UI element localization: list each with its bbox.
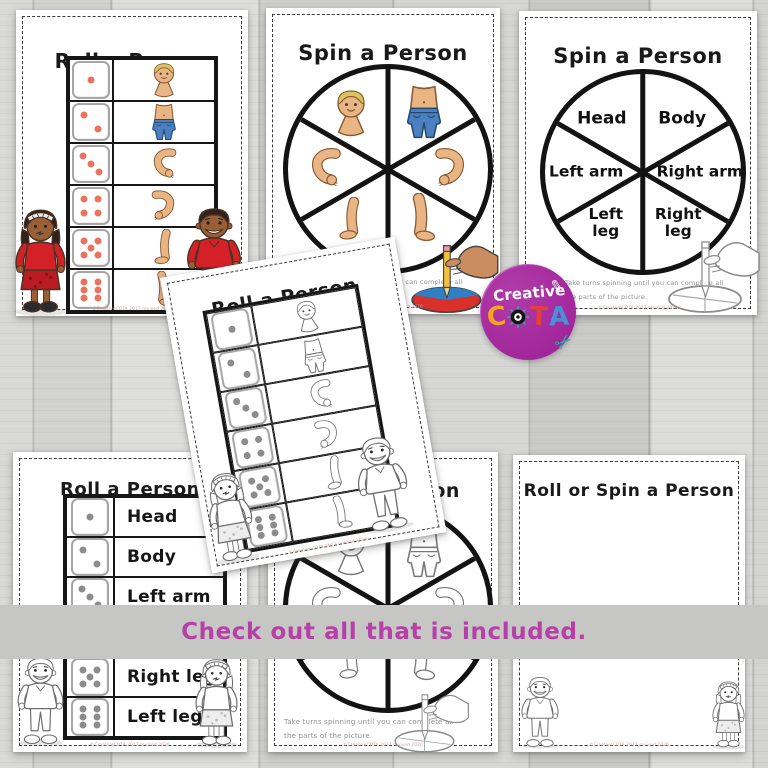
die-cell xyxy=(66,497,114,537)
hand-spinning-pencil-image xyxy=(665,236,761,316)
die-5 xyxy=(71,658,109,696)
instructions-line2: the parts of the picture. xyxy=(565,293,647,301)
copyright-text: ©CreativeCOTA 2017 revised 2020 xyxy=(13,742,247,747)
girl-character xyxy=(10,206,71,318)
left-leg-image xyxy=(328,197,374,243)
boy-character xyxy=(15,654,66,748)
die-1 xyxy=(71,498,109,536)
card-title: Roll or Spin a Person xyxy=(513,481,745,501)
die-cell xyxy=(69,185,113,227)
die-cell xyxy=(69,143,113,185)
logo-letter-c: C xyxy=(486,303,508,331)
copyright-text: ©CreativeCOTA 2017 revised 2020 xyxy=(268,742,498,747)
die-2 xyxy=(217,347,261,391)
logo-letter-a: A xyxy=(548,303,569,330)
head-image xyxy=(324,86,378,140)
card-title: Spin a Person xyxy=(266,41,500,65)
die-cell xyxy=(66,657,114,697)
instructions-line2: the parts of the picture. xyxy=(284,732,372,740)
card-spin-a-person-text: Spin a Person Head Body Left arm Right a… xyxy=(519,11,757,315)
die-1 xyxy=(72,61,110,99)
left-leg-image xyxy=(145,229,183,267)
product-preview-collage: Roll a Person ©CreativeCOTA 2017 revised… xyxy=(0,0,768,768)
eye-icon xyxy=(507,306,529,328)
wedge-label-left-leg: Left leg xyxy=(580,206,632,240)
girl-character xyxy=(191,656,242,750)
part-cell xyxy=(113,59,215,101)
girl-character xyxy=(709,679,748,751)
left-leg-image xyxy=(314,453,356,495)
right-leg-image xyxy=(321,492,363,534)
left-arm-image xyxy=(146,146,182,182)
right-leg-image xyxy=(396,193,448,245)
body-image xyxy=(144,102,184,142)
die-4 xyxy=(231,425,275,469)
wedge-label-body: Body xyxy=(658,110,706,129)
caption-banner: Check out all that is included. xyxy=(0,605,768,659)
die-cell xyxy=(69,59,113,101)
wedge-label-left-arm: Left arm xyxy=(549,163,623,180)
logo-word-cota: C T A xyxy=(486,304,570,330)
caption-text: Check out all that is included. xyxy=(181,619,587,645)
die-4 xyxy=(72,187,110,225)
right-arm-image xyxy=(428,145,474,191)
left-arm-image xyxy=(302,145,348,191)
wedge-label-head: Head xyxy=(577,110,626,129)
boy-character xyxy=(519,674,561,750)
die-cell xyxy=(66,537,114,577)
die-cell xyxy=(69,269,113,311)
die-1 xyxy=(210,307,254,351)
die-6 xyxy=(72,271,110,309)
part-cell xyxy=(113,101,215,143)
right-arm-image xyxy=(308,415,347,454)
wedge-label-right-arm: Right arm xyxy=(657,163,743,180)
body-image xyxy=(395,83,453,141)
die-3 xyxy=(72,145,110,183)
die-3 xyxy=(224,386,268,430)
die-cell xyxy=(69,101,113,143)
logo-letter-t: T xyxy=(529,304,548,331)
left-arm-image xyxy=(301,375,340,414)
card-roll-or-spin-a-person: Roll or Spin a Person ©CreativeCOTA 2017… xyxy=(513,455,745,752)
die-cell xyxy=(69,227,113,269)
part-cell xyxy=(113,143,215,185)
creative-cota-logo: Creative ✎ C T A ✂ xyxy=(480,264,576,360)
wedge-label-right-leg: Right leg xyxy=(652,206,704,240)
copyright-text: ©CreativeCOTA 2017 revised 2020 xyxy=(513,742,745,747)
die-6 xyxy=(71,698,109,736)
die-5 xyxy=(72,229,110,267)
right-arm-image xyxy=(146,188,182,224)
body-image xyxy=(292,334,335,377)
card-title: Spin a Person xyxy=(519,44,757,68)
die-cell xyxy=(66,697,114,737)
die-2 xyxy=(71,538,109,576)
die-2 xyxy=(72,103,110,141)
head-image xyxy=(285,295,328,338)
head-image xyxy=(144,60,184,100)
